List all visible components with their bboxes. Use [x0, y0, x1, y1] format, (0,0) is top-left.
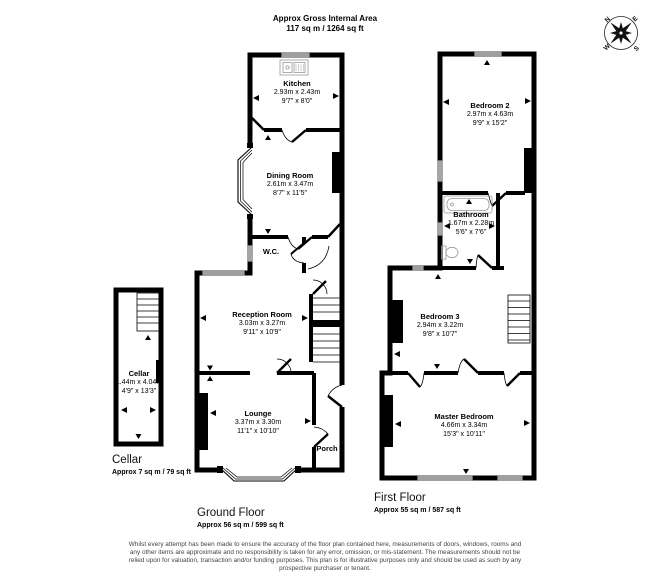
- lounge-chimney-breast: [199, 393, 208, 450]
- wc-name: W.C.: [249, 247, 293, 256]
- lounge-bay-window: [217, 466, 301, 481]
- bathroom-name: Bathroom: [421, 210, 521, 219]
- disclaimer-line: Whilst every attempt has been made to en…: [50, 541, 600, 549]
- room-label-bathroom: Bathroom 1.67m x 2.28m 5'6" x 7'6": [421, 210, 521, 237]
- gross-internal-area-value: 117 sq m / 1264 sq ft: [175, 24, 475, 34]
- room-label-reception-room: Reception Room 3.03m x 3.27m 9'11" x 10'…: [212, 310, 312, 337]
- reception-metric: 3.03m x 3.27m: [212, 319, 312, 328]
- bathroom-metric: 1.67m x 2.28m: [421, 219, 521, 228]
- cellar-metric: 1.44m x 4.04m: [98, 378, 180, 387]
- bedroom3-metric: 2.94m x 3.22m: [390, 321, 490, 330]
- porch-name: Porch: [305, 444, 349, 453]
- ground-stairs-landing-edge: [311, 320, 342, 327]
- bedroom2-top-window: [474, 51, 502, 57]
- cellar-caption-area: Approx 7 sq m / 79 sq ft: [112, 469, 191, 476]
- kitchen-imperial: 9'7" x 8'0": [247, 97, 347, 106]
- lounge-metric: 3.37m x 3.30m: [208, 418, 308, 427]
- bedroom3-name: Bedroom 3: [390, 312, 490, 321]
- compass-w-label: W: [603, 42, 613, 52]
- bedroom2-imperial: 9'9" x 15'2": [440, 119, 540, 128]
- reception-name: Reception Room: [212, 310, 312, 319]
- ground-caption-area: Approx 56 sq m / 599 sq ft: [197, 522, 284, 529]
- compass-s-label: S: [633, 44, 641, 52]
- reception-imperial: 9'11" x 10'9": [212, 328, 312, 337]
- dining-name: Dining Room: [240, 171, 340, 180]
- bedroom2-name: Bedroom 2: [440, 101, 540, 110]
- master-name: Master Bedroom: [404, 412, 524, 421]
- header: Approx Gross Internal Area 117 sq m / 12…: [175, 14, 475, 33]
- room-label-cellar: Cellar 1.44m x 4.04m 4'9" x 13'3": [98, 369, 180, 396]
- disclaimer: Whilst every attempt has been made to en…: [50, 541, 600, 573]
- bedroom2-metric: 2.97m x 4.63m: [440, 110, 540, 119]
- lounge-imperial: 11'1" x 10'10": [208, 427, 308, 436]
- bedroom3-window: [412, 265, 424, 271]
- first-caption-title: First Floor: [374, 492, 461, 505]
- master-chimney-breast: [384, 395, 393, 447]
- kitchen-metric: 2.93m x 2.43m: [247, 88, 347, 97]
- kitchen-name: Kitchen: [247, 79, 347, 88]
- room-label-lounge: Lounge 3.37m x 3.30m 11'1" x 10'10": [208, 409, 308, 436]
- porch-entry-gap: [339, 385, 345, 407]
- room-label-bedroom3: Bedroom 3 2.94m x 3.22m 9'8" x 10'7": [390, 312, 490, 339]
- reception-window: [202, 270, 245, 276]
- kitchen-window: [281, 52, 310, 58]
- disclaimer-line: relied upon for valuation, transaction a…: [50, 557, 600, 565]
- disclaimer-line: any other items are approximate and no r…: [50, 549, 600, 557]
- first-caption-area: Approx 55 sq m / 587 sq ft: [374, 507, 461, 514]
- dining-metric: 2.61m x 3.47m: [240, 180, 340, 189]
- room-label-master-bedroom: Master Bedroom 4.66m x 3.34m 15'3" x 10'…: [404, 412, 524, 439]
- cellar-caption-title: Cellar: [112, 454, 191, 467]
- disclaimer-line: prospective purchaser or tenant.: [50, 565, 600, 573]
- room-label-kitchen: Kitchen 2.93m x 2.43m 9'7" x 8'0": [247, 79, 347, 106]
- master-metric: 4.66m x 3.34m: [404, 421, 524, 430]
- bedroom2-chimney-breast: [524, 148, 534, 193]
- lounge-name: Lounge: [208, 409, 308, 418]
- ground-floor-caption: Ground Floor Approx 56 sq m / 599 sq ft: [197, 507, 284, 529]
- master-bedroom-windows: [417, 475, 523, 481]
- ground-outer-walls: [197, 55, 342, 470]
- floorplan-canvas: Approx Gross Internal Area 117 sq m / 12…: [0, 0, 650, 575]
- master-imperial: 15'3" x 10'11": [404, 430, 524, 439]
- compass-icon: N E S W: [596, 8, 646, 58]
- ground-caption-title: Ground Floor: [197, 507, 284, 520]
- cellar-caption: Cellar Approx 7 sq m / 79 sq ft: [112, 454, 191, 476]
- cellar-name: Cellar: [98, 369, 180, 378]
- cellar-walls: [116, 290, 161, 444]
- cellar-imperial: 4'9" x 13'3": [98, 387, 180, 396]
- room-label-bedroom2: Bedroom 2 2.97m x 4.63m 9'9" x 15'2": [440, 101, 540, 128]
- room-label-dining-room: Dining Room 2.61m x 3.47m 8'7" x 11'5": [240, 171, 340, 198]
- gross-internal-area-title: Approx Gross Internal Area: [175, 14, 475, 24]
- room-label-wc: W.C.: [249, 247, 293, 256]
- bathroom-imperial: 5'6" x 7'6": [421, 228, 521, 237]
- dining-imperial: 8'7" x 11'5": [240, 189, 340, 198]
- bedroom3-imperial: 9'8" x 10'7": [390, 330, 490, 339]
- bedroom2-side-window: [437, 160, 443, 182]
- first-floor-caption: First Floor Approx 55 sq m / 587 sq ft: [374, 492, 461, 514]
- room-label-porch: Porch: [305, 444, 349, 453]
- compass-n-label: N: [604, 16, 612, 24]
